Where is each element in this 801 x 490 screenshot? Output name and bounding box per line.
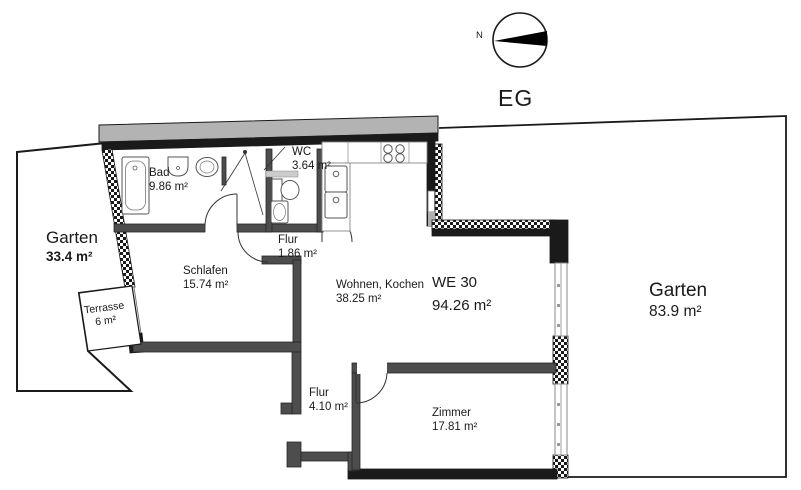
floorplan-drawing [0,0,801,490]
room-label-wc: WC 3.64 m² [292,145,331,173]
room-name: Schlafen [183,264,228,278]
shower-mark [221,151,263,216]
bathtub [122,157,149,214]
room-label-wohnen: Wohnen, Kochen 38.25 m² [336,278,424,306]
outdoor-area: 33.4 m² [46,249,98,264]
room-area: 1.86 m² [278,247,317,261]
bad-door [205,194,237,226]
room-label-schlafen: Schlafen 15.74 m² [183,264,228,292]
living-room-window [555,263,567,336]
kitchen-fixtures [322,142,427,231]
room-label-flur1: Flur 1.86 m² [278,233,317,261]
zimmer-door-opening [357,362,387,374]
outdoor-area: 83.9 m² [649,303,707,320]
room-label-bad: Bad 9.86 m² [149,166,188,194]
garden-right-label: Garten 83.9 m² [649,279,707,320]
floorplan-page: N EG Garten 33.4 m² Terrasse 6 m² Garten… [0,0,801,490]
room-name: Flur [278,233,317,247]
room-label-zimmer: Zimmer 17.81 m² [432,406,477,434]
outdoor-name: Garten [46,226,98,249]
outdoor-name: Garten [649,279,707,303]
kitchen-window [428,191,435,212]
unit-label: WE 30 94.26 m² [432,271,491,317]
garden-left-label: Garten 33.4 m² [46,226,98,264]
compass-north-label: N [476,30,483,41]
floor-label: EG [498,85,533,113]
room-label-flur2: Flur 4.10 m² [309,386,348,414]
terrace-label: Terrasse 6 m² [81,299,130,330]
kitchen-counter-top [322,142,427,163]
zimmer-door [356,373,387,403]
room-area: 38.25 m² [336,292,424,306]
room-name: Bad [149,166,188,180]
unit-area: 94.26 m² [432,294,491,317]
room-name: WC [292,145,331,159]
room-name: Flur [309,386,348,400]
compass-icon [493,13,547,67]
room-name: Wohnen, Kochen [336,278,424,292]
room-area: 17.81 m² [432,420,477,434]
unit-name: WE 30 [432,271,491,294]
room-area: 4.10 m² [309,400,348,414]
washbasin-round [196,158,218,177]
wc-basin [271,201,288,223]
zimmer-window [555,384,567,455]
room-area: 15.74 m² [183,278,228,292]
kitchen-sink-2 [325,192,347,218]
room-name: Zimmer [432,406,477,420]
room-area: 9.86 m² [149,180,188,194]
room-area: 3.64 m² [292,159,331,173]
